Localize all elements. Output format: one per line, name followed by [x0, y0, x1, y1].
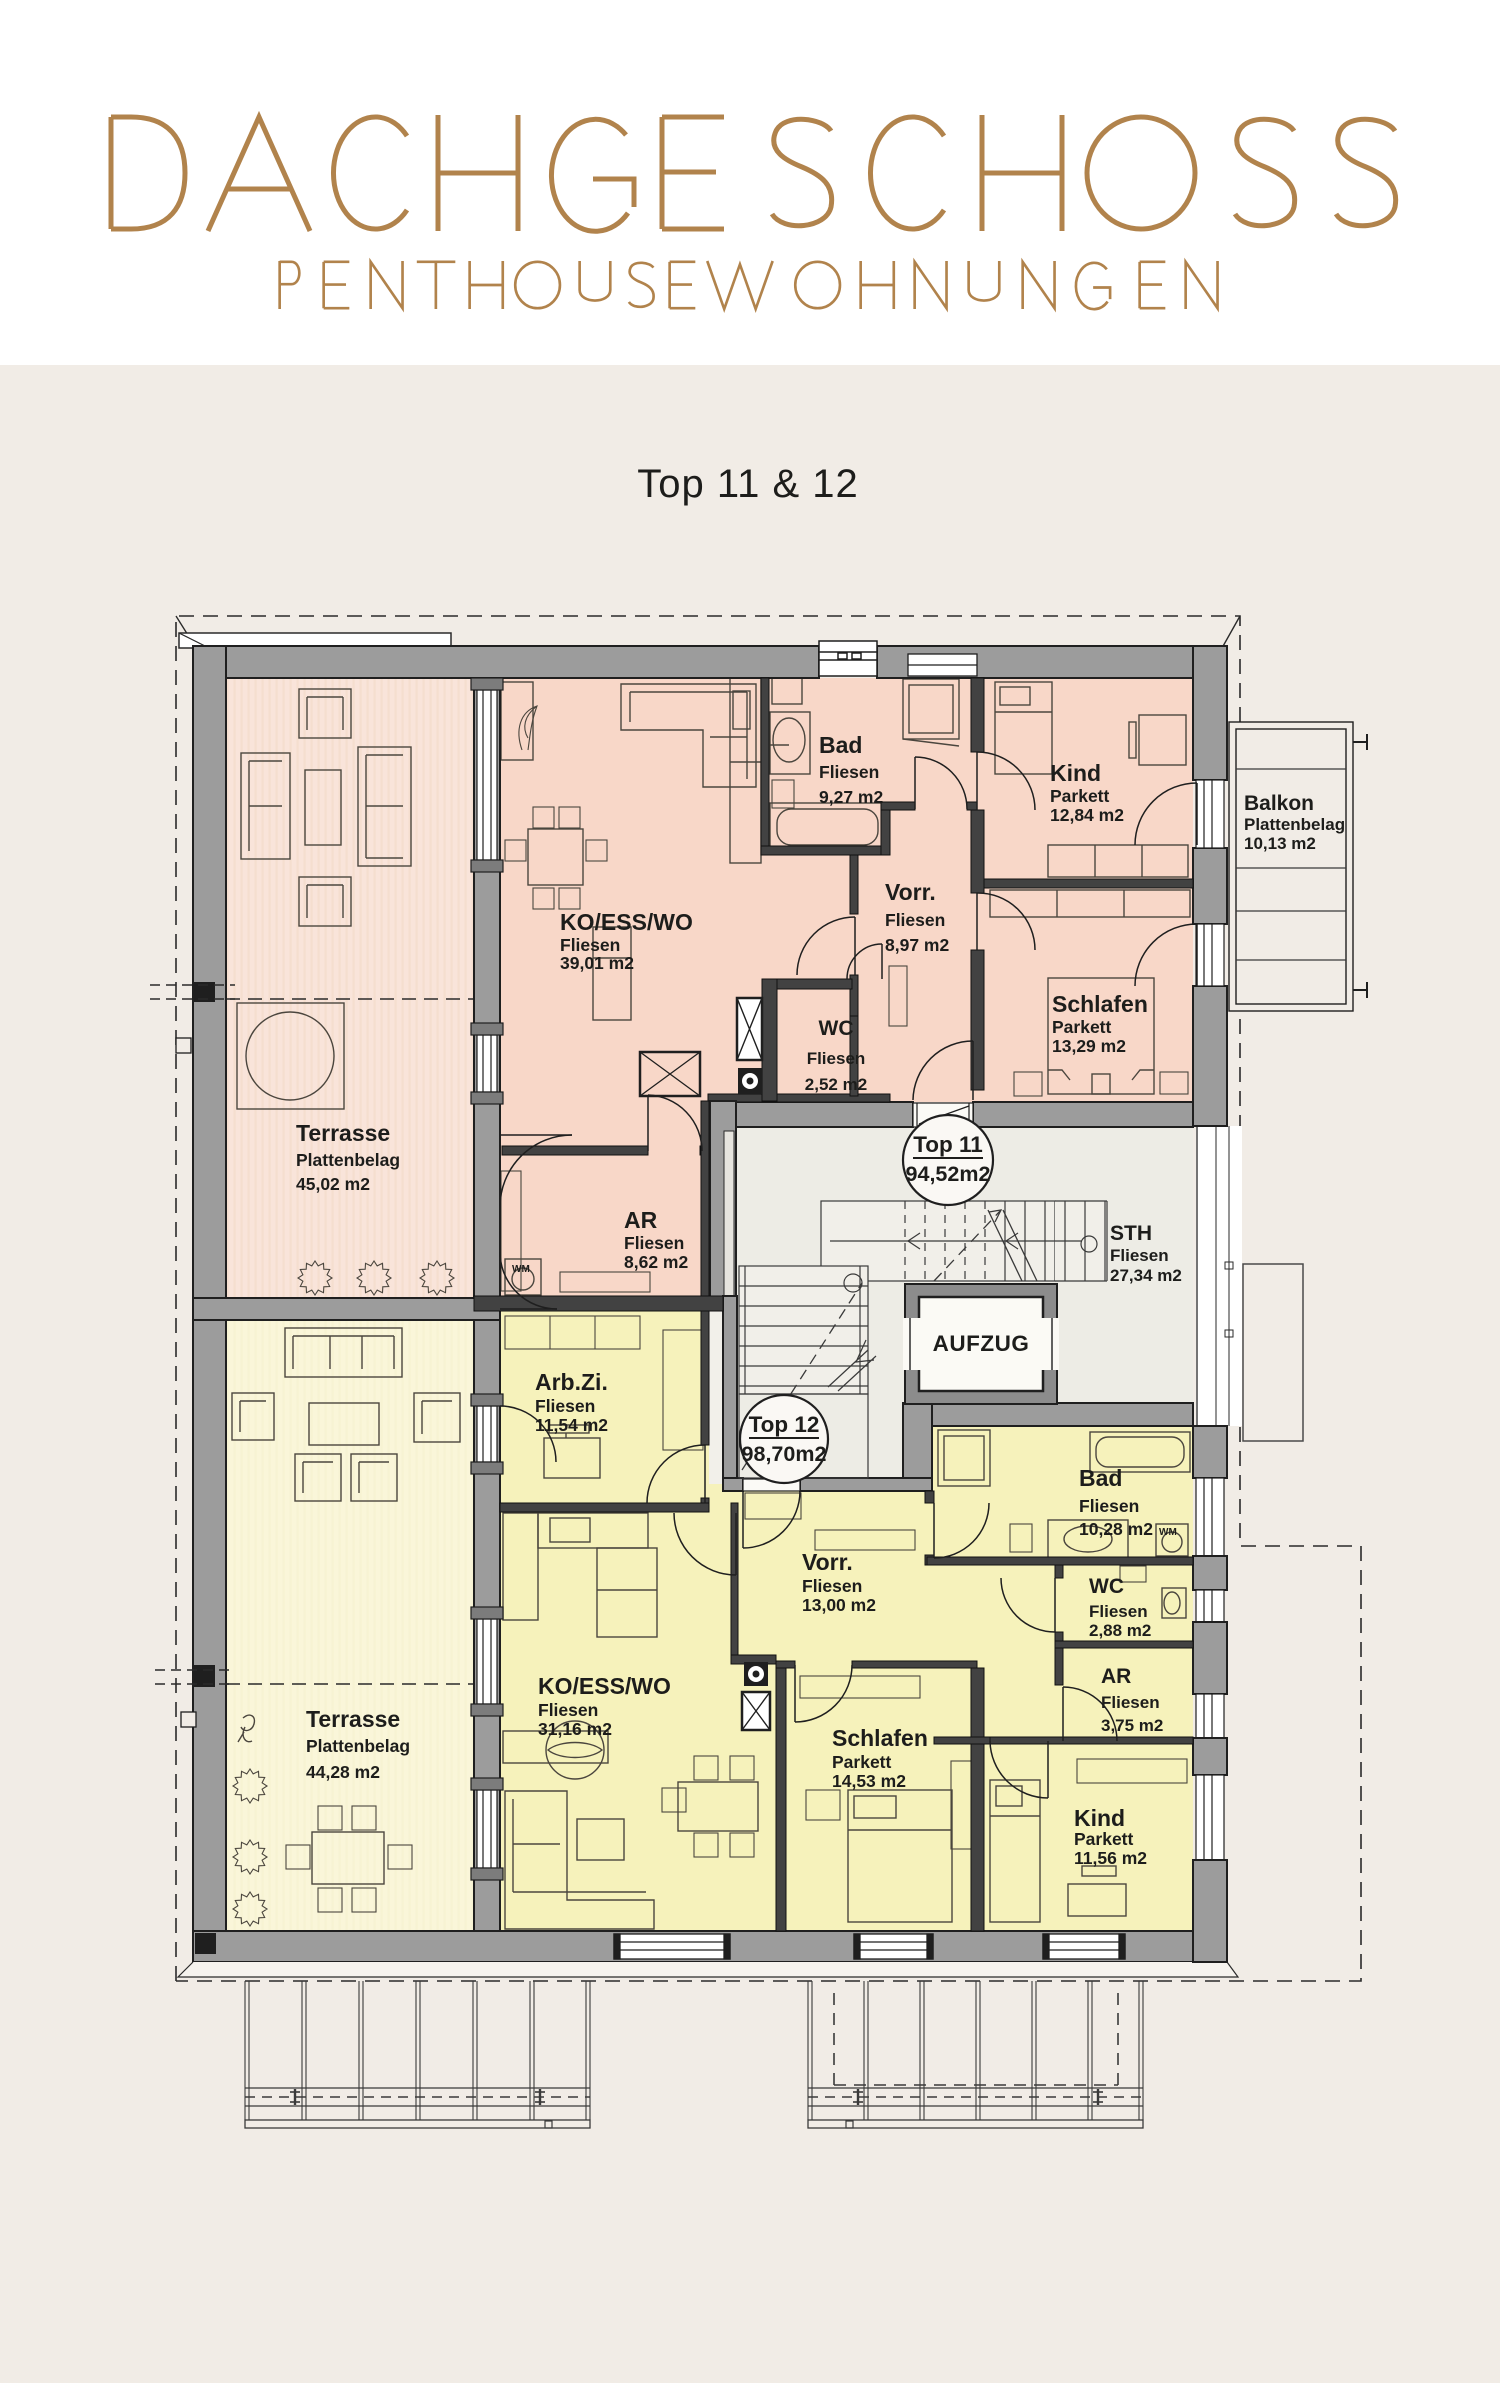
svg-text:Top 11 & 12: Top 11 & 12: [637, 462, 859, 506]
svg-text:Top 11: Top 11: [913, 1132, 983, 1157]
svg-text:WM: WM: [1159, 1527, 1177, 1538]
svg-text:94,52m2: 94,52m2: [906, 1162, 991, 1186]
svg-text:WM: WM: [512, 1264, 530, 1275]
svg-text:Top 12: Top 12: [749, 1412, 820, 1437]
svg-text:98,70m2: 98,70m2: [742, 1442, 827, 1466]
svg-text:AUFZUG: AUFZUG: [933, 1331, 1030, 1356]
